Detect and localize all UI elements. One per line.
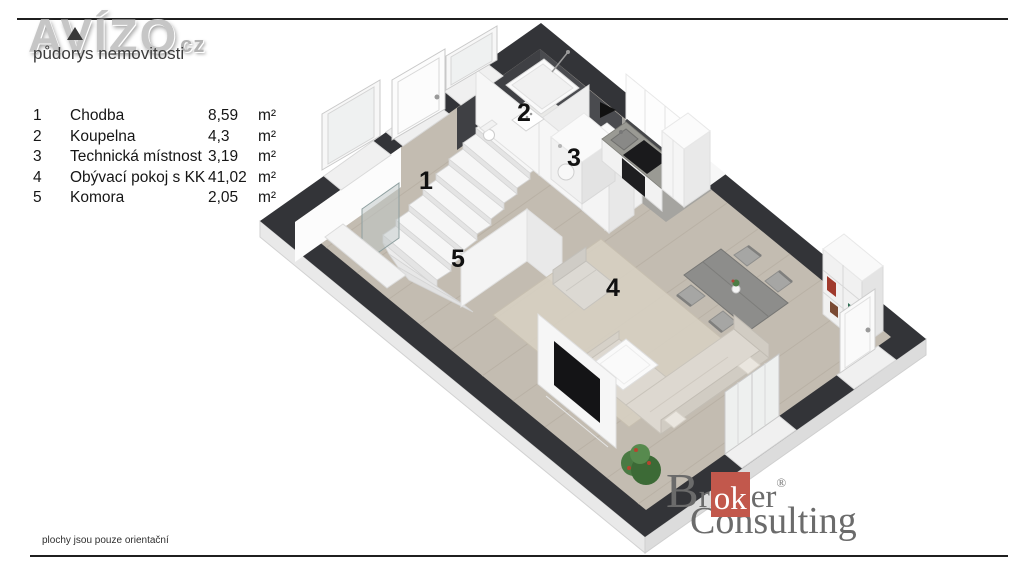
legend-number: 1 xyxy=(33,106,70,127)
legend-unit: m² xyxy=(258,168,286,189)
room-label-3: 3 xyxy=(567,144,581,172)
legend-unit: m² xyxy=(258,188,286,209)
legend-room-name: Komora xyxy=(70,188,208,209)
legend-area: 2,05 xyxy=(208,188,258,209)
legend-area: 4,3 xyxy=(208,127,258,148)
page-title: půdorys nemovitosti xyxy=(33,44,184,64)
legend-number: 2 xyxy=(33,127,70,148)
legend-room-name: Obývací pokoj s KK xyxy=(70,168,208,189)
legend-row: 1 Chodba 8,59 m² xyxy=(33,106,286,127)
legend-number: 5 xyxy=(33,188,70,209)
legend-number: 4 xyxy=(33,168,70,189)
floorplan-page: AVÍZOcz půdorys nemovitosti 1 Chodba 8,5… xyxy=(0,0,1024,576)
logo-triangle-icon xyxy=(67,27,83,40)
legend-unit: m² xyxy=(258,127,286,148)
room-label-1: 1 xyxy=(419,167,433,195)
legend-row: 2 Koupelna 4,3 m² xyxy=(33,127,286,148)
floorplan-render: 1 2 3 4 5 xyxy=(0,0,1024,576)
door-handle xyxy=(435,95,440,100)
legend-area: 3,19 xyxy=(208,147,258,168)
room-label-4: 4 xyxy=(606,274,620,302)
legend-row: 3 Technická místnost 3,19 m² xyxy=(33,147,286,168)
legend-unit: m² xyxy=(258,106,286,127)
legend-room-name: Chodba xyxy=(70,106,208,127)
legend: 1 Chodba 8,59 m² 2 Koupelna 4,3 m² 3 Tec… xyxy=(33,106,286,209)
legend-area: 41,02 xyxy=(208,168,258,189)
disclaimer-text: plochy jsou pouze orientační xyxy=(42,535,169,546)
broker-consulting-logo: Broker® Consulting xyxy=(666,466,857,540)
broker-red-square: ok xyxy=(711,472,750,517)
avizo-logo: AVÍZOcz půdorys nemovitosti xyxy=(28,12,205,59)
legend-room-name: Technická místnost xyxy=(70,147,208,168)
faucet xyxy=(619,130,623,134)
legend-area: 8,59 xyxy=(208,106,258,127)
legend-row: 4 Obývací pokoj s KK 41,02 m² xyxy=(33,168,286,189)
room-label-5: 5 xyxy=(451,245,465,273)
legend-row: 5 Komora 2,05 m² xyxy=(33,188,286,209)
door-handle xyxy=(866,328,871,333)
legend-number: 3 xyxy=(33,147,70,168)
registered-mark: ® xyxy=(776,475,786,490)
legend-unit: m² xyxy=(258,147,286,168)
room-label-2: 2 xyxy=(517,99,531,127)
legend-room-name: Koupelna xyxy=(70,127,208,148)
